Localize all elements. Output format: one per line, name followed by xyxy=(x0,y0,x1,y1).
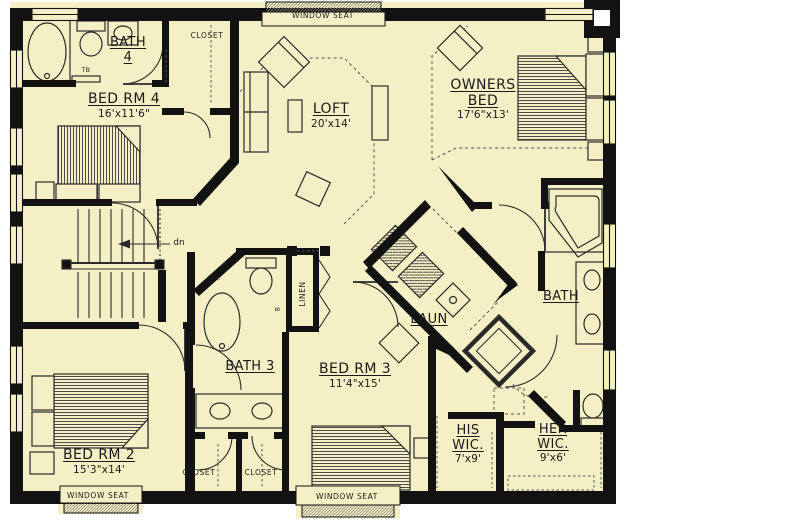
room-label-owner-bath: BATH xyxy=(543,290,579,305)
room-label-bed-rm-2: BED RM 2 15'3"x14' xyxy=(63,448,135,476)
room-label-laundry: LAUN xyxy=(410,313,447,328)
bath3-tub xyxy=(204,293,240,351)
room-label-bed-rm-4: BED RM 4 16'x11'6" xyxy=(88,92,160,120)
loft-table xyxy=(288,100,302,132)
hall-vanity xyxy=(196,394,284,428)
room-label-loft: LOFT 20'x14' xyxy=(311,102,351,130)
room-label-his-wic: HIS WIC. 7'x9' xyxy=(452,424,484,466)
stairs-down-label: dn xyxy=(173,238,184,248)
towel-bar xyxy=(72,76,100,82)
room-label-bath-3: BATH 3 xyxy=(225,360,274,375)
closet-label-bottom-left: CLOSET xyxy=(183,469,216,477)
room-label-her-wic: HER WIC. 9'x6' xyxy=(537,423,569,465)
room-label-bed-rm-3: BED RM 3 11'4"x15' xyxy=(319,362,391,390)
window-seat-label-bottom-left: WINDOW SEAT xyxy=(67,492,129,500)
closet-label-bottom-center: CLOSET xyxy=(245,469,278,477)
closet-label-top: CLOSET xyxy=(191,32,224,40)
broom-label: B xyxy=(276,307,283,311)
bath4-toilet xyxy=(77,21,105,56)
window-seat-label-bottom-center: WINDOW SEAT xyxy=(316,493,378,501)
room-label-owners-bed: OWNERS BED 17'6"x13' xyxy=(450,78,515,122)
towel-bar-label: TB xyxy=(82,68,90,75)
loft-console xyxy=(372,86,388,140)
owner-toilet xyxy=(581,394,605,429)
window-seat-label-top: WINDOW SEAT xyxy=(292,12,354,20)
room-label-bath-4: BATH 4 xyxy=(110,36,146,65)
attic-access-label: ART. xyxy=(207,276,221,283)
floor-plan: WINDOW SEAT CLOSET BATH 4 TB BED RM 4 16… xyxy=(0,0,800,529)
loft-sofa xyxy=(244,72,268,152)
linen-label: LINEN xyxy=(299,281,307,306)
